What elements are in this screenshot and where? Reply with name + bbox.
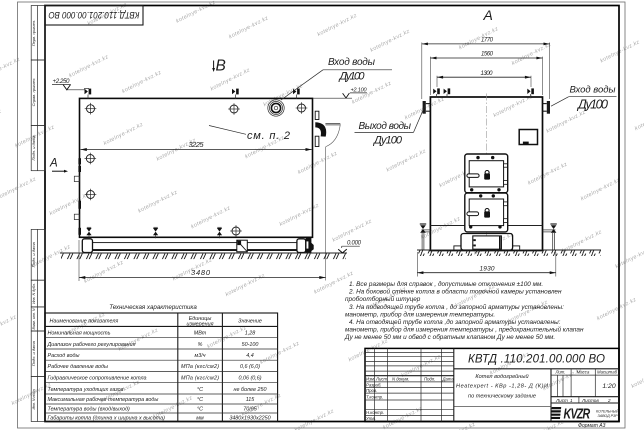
svg-text:А: А: [49, 158, 58, 170]
svg-text:Вход воды: Вход воды: [570, 85, 616, 96]
svg-text:Подп. и дата: Подп. и дата: [31, 242, 36, 268]
svg-text:Подп.: Подп.: [424, 377, 435, 382]
svg-text:2. На боковой стенке котла в: 2. На боковой стенке котла в области топ…: [348, 288, 562, 296]
svg-text:Котел водогрейный: Котел водогрейный: [475, 373, 528, 380]
svg-text:%: %: [198, 342, 203, 348]
svg-text:0.000: 0.000: [347, 240, 362, 246]
svg-text:Лит.: Лит.: [554, 370, 565, 375]
svg-text:А: А: [483, 7, 493, 23]
svg-text:Расход воды: Расход воды: [48, 353, 80, 359]
svg-text:1,28: 1,28: [245, 331, 256, 337]
svg-text:Рабочее давление воды: Рабочее давление воды: [48, 364, 108, 370]
svg-text:1770: 1770: [481, 38, 494, 44]
svg-text:не более 250: не более 250: [234, 387, 267, 393]
svg-text:м3/ч: м3/ч: [195, 353, 206, 359]
svg-text:Подп. и дата: Подп. и дата: [31, 340, 36, 366]
svg-text:Максимальная рабочая температу: Максимальная рабочая температура воды: [48, 397, 159, 403]
svg-text:4,4: 4,4: [246, 353, 254, 359]
svg-text:см. п. 2: см. п. 2: [247, 130, 290, 142]
svg-text:KVZR: KVZR: [564, 406, 591, 423]
svg-text:+2.250: +2.250: [53, 78, 71, 85]
svg-text:Разраб.: Разраб.: [366, 382, 382, 387]
svg-text:Ду100: Ду100: [338, 70, 366, 82]
svg-text:Пров.: Пров.: [366, 388, 377, 393]
svg-text:Техническая характеристика: Техническая характеристика: [109, 304, 197, 311]
svg-text:Подп. и дата: Подп. и дата: [31, 135, 36, 161]
svg-text:Ду не менее 50 мм и обвод: Ду не менее 50 мм и обвод с обратным кла…: [344, 333, 555, 341]
svg-text:Ду100: Ду100: [372, 135, 403, 147]
svg-text:Формат А3: Формат А3: [578, 423, 606, 429]
svg-text:Диапазон рабочего регулировани: Диапазон рабочего регулирования: [47, 342, 136, 348]
svg-text:Справ. примен.: Справ. примен.: [31, 78, 36, 107]
svg-text:70/95: 70/95: [243, 407, 257, 413]
svg-text:Изм.: Изм.: [366, 377, 375, 382]
svg-text:Н.контр.: Н.контр.: [366, 410, 384, 415]
svg-text:Лист: Лист: [555, 398, 568, 403]
svg-text:1: 1: [570, 398, 573, 403]
svg-text:Перв. примен.: Перв. примен.: [31, 20, 36, 47]
svg-text:МВт: МВт: [194, 331, 207, 337]
svg-text:Масса: Масса: [577, 370, 590, 375]
svg-text:измерения: измерения: [187, 321, 214, 327]
svg-text:1:20: 1:20: [602, 383, 615, 390]
svg-text:Значение: Значение: [238, 319, 262, 325]
svg-text:Гидравлическое сопротивление к: Гидравлическое сопротивление котла: [48, 376, 147, 382]
svg-text:Утв.: Утв.: [366, 416, 376, 421]
svg-text:КВТД .110.201.00.000 ВО: КВТД .110.201.00.000 ВО: [468, 353, 605, 365]
svg-text:50-100: 50-100: [242, 342, 259, 348]
svg-text:3225: 3225: [189, 140, 205, 149]
svg-text:Габариты котла (длинна х ширин: Габариты котла (длинна х ширина х высота…: [48, 415, 166, 421]
svg-text:Выход воды: Выход воды: [359, 121, 412, 132]
svg-text:КОТЕЛЬНЫЙ: КОТЕЛЬНЫЙ: [596, 410, 619, 414]
svg-text:0,6 (6,0): 0,6 (6,0): [240, 364, 260, 370]
svg-text:манометр, прибор для измерени: манометр, прибор для измерения температу…: [345, 310, 495, 318]
svg-text:Инв. N подл.: Инв. N подл.: [32, 388, 36, 409]
svg-text:1930: 1930: [480, 265, 495, 272]
svg-text:2: 2: [607, 398, 611, 403]
svg-text:°С: °С: [197, 387, 203, 393]
svg-text:4. На отводящей трубе котла ,: 4. На отводящей трубе котла ,до запорной…: [349, 318, 561, 326]
svg-text:В: В: [216, 58, 226, 75]
svg-text:3480х1930х2250: 3480х1930х2250: [229, 415, 270, 421]
svg-text:Т.контр.: Т.контр.: [366, 394, 383, 399]
svg-text:°С: °С: [197, 407, 203, 413]
svg-text:115: 115: [246, 397, 256, 403]
svg-text:Ду100: Ду100: [576, 97, 608, 111]
svg-text:МПа (кгс/см2): МПа (кгс/см2): [181, 364, 219, 370]
svg-text:Температура воды (вход/выход): Температура воды (вход/выход): [48, 407, 131, 413]
svg-text:мм: мм: [196, 415, 204, 421]
svg-text:Номинальная мощность: Номинальная мощность: [48, 331, 111, 337]
svg-text:1560: 1560: [481, 52, 494, 58]
svg-text:Наименование показателя: Наименование показателя: [50, 319, 119, 325]
svg-text:Лист: Лист: [375, 377, 387, 382]
svg-text:N докум.: N докум.: [392, 377, 409, 382]
svg-text:Взам. инв. N: Взам. инв. N: [32, 308, 36, 329]
svg-text:°С: °С: [197, 397, 203, 403]
svg-text:КВТД.110.201.00.000 ВО: КВТД.110.201.00.000 ВО: [49, 10, 140, 20]
svg-text:Листов: Листов: [581, 398, 599, 403]
svg-text:1. Все размеры для справок ,: 1. Все размеры для справок , допустимые …: [349, 280, 543, 288]
svg-text:по техническому задание: по техническому задание: [468, 393, 536, 399]
svg-text:3. На подводящей трубе котла: 3. На подводящей трубе котла , до запорн…: [349, 303, 564, 311]
svg-text:ЗАВОД РЗР: ЗАВОД РЗР: [598, 414, 619, 418]
svg-text:1300: 1300: [481, 71, 494, 77]
svg-text:МПа (кгс/см2): МПа (кгс/см2): [181, 376, 219, 382]
svg-text:Температура уходящих газов: Температура уходящих газов: [48, 387, 124, 393]
svg-text:манометр, прибор для измерени: манометр, прибор для измерения температу…: [345, 326, 584, 334]
svg-text:Масштаб: Масштаб: [597, 370, 618, 375]
svg-text:Вход воды: Вход воды: [328, 57, 376, 68]
svg-text:пробоотборный штуцер: пробоотборный штуцер: [345, 295, 421, 303]
svg-text:Дата: Дата: [442, 377, 455, 382]
svg-text:3480: 3480: [191, 268, 211, 277]
svg-text:Инв. N дубл.: Инв. N дубл.: [32, 283, 36, 304]
svg-text:Heatexpert - КВр -1,28- Д (К): Heatexpert - КВр -1,28- Д (К)И: [456, 384, 548, 390]
svg-text:0,06 (0,6): 0,06 (0,6): [238, 376, 261, 382]
